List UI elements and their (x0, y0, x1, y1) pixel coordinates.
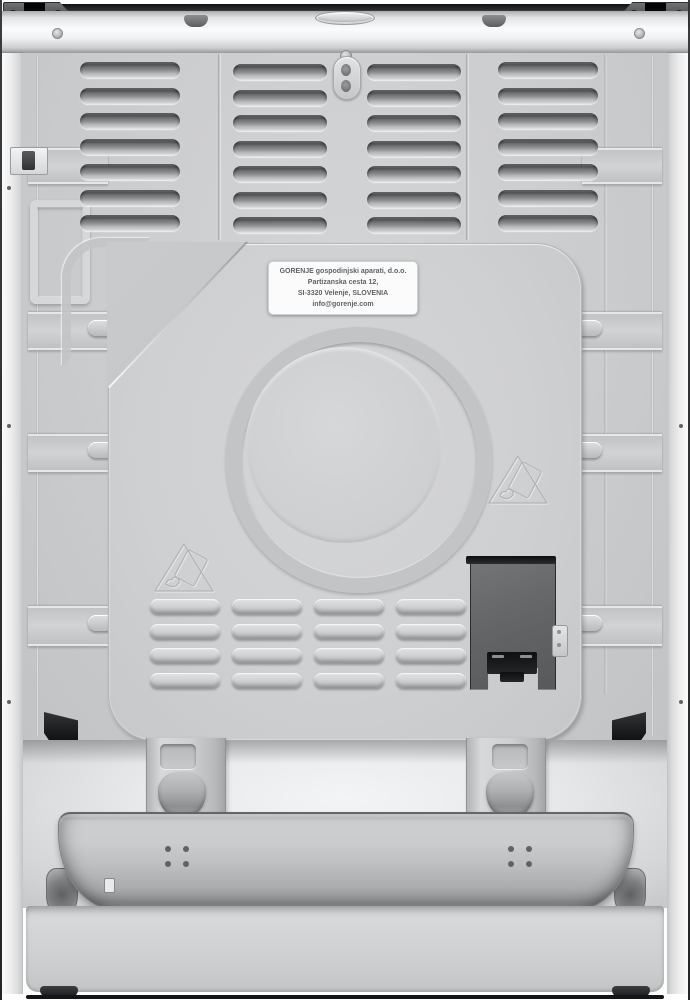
pan-support-tab (482, 15, 506, 27)
vent-slot (80, 164, 180, 180)
clamp-tab (500, 672, 524, 682)
side-screw-icon (7, 186, 11, 190)
vent-slot (498, 215, 598, 231)
vent-slot (233, 141, 327, 157)
baking-pan (58, 812, 634, 911)
vent-slot (367, 192, 461, 208)
panel-seam (218, 54, 221, 240)
center-mount-bracket (333, 56, 361, 100)
rating-label-line: Partizanska cesta 12, (269, 277, 417, 288)
panel-seam (466, 54, 469, 240)
side-screw-icon (679, 424, 683, 428)
vent-slot (498, 139, 598, 155)
clamp-slot (492, 655, 504, 658)
rating-label-line: info@gorenje.com (269, 299, 417, 310)
rail-cutout (492, 744, 528, 769)
vent-slot (233, 166, 327, 182)
vent-slot (233, 217, 327, 233)
vent-slot (367, 90, 461, 106)
rail-cutout (160, 744, 196, 769)
vent-pill (314, 673, 384, 688)
vent-slot (498, 113, 598, 129)
vent-pill (150, 673, 220, 688)
vent-slot (80, 190, 180, 206)
clamp-slot (520, 655, 532, 658)
rating-label-line: GORENJE gospodinjski aparati, d.o.o. (269, 266, 417, 277)
rating-label: GORENJE gospodinjski aparati, d.o.o. Par… (268, 261, 418, 315)
latch-pin (22, 151, 35, 170)
vent-pill (232, 624, 302, 639)
pan-hole (104, 878, 115, 893)
vent-pill (232, 599, 302, 614)
vent-pill (232, 648, 302, 663)
vent-slot (80, 139, 180, 155)
pan-screw-icon (165, 846, 171, 852)
vent-pill (150, 599, 220, 614)
strip-screw-icon (52, 28, 63, 39)
gorenje-logo-badge (315, 11, 375, 25)
fan-cover-disc (246, 347, 442, 543)
vent-pill (396, 624, 466, 639)
pan-screw-icon (183, 861, 189, 867)
vent-slot (80, 113, 180, 129)
vent-slot (233, 115, 327, 131)
bracket-hole-icon (341, 80, 351, 92)
rating-label-line: SI-3320 Velenje, SLOVENIA (269, 288, 417, 299)
vent-slot (367, 115, 461, 131)
pan-screw-icon (508, 846, 514, 852)
vent-pill (396, 599, 466, 614)
side-screw-icon (679, 700, 683, 704)
vent-slot (367, 141, 461, 157)
vent-slot (367, 166, 461, 182)
vent-slot (233, 90, 327, 106)
vent-pill (314, 599, 384, 614)
pan-screw-icon (526, 861, 532, 867)
terminal-box-lid (466, 556, 556, 564)
vent-pill (314, 624, 384, 639)
vent-pill (150, 624, 220, 639)
tab-hole (557, 630, 561, 634)
side-screw-icon (7, 700, 11, 704)
bracket-hole-icon (341, 64, 351, 76)
vent-pill (314, 648, 384, 663)
vent-slot (367, 217, 461, 233)
pan-support-tab (184, 15, 208, 27)
tip-over-warning-icon (483, 452, 553, 510)
vent-pill (396, 673, 466, 688)
left-side-wall (2, 46, 23, 994)
strip-screw-icon (634, 28, 645, 39)
vent-pill (150, 648, 220, 663)
pan-screw-icon (183, 846, 189, 852)
tip-over-warning-icon (149, 540, 219, 598)
base-shadow-line (26, 995, 664, 999)
vent-slot (498, 164, 598, 180)
vent-slot (233, 192, 327, 208)
plinth-panel (26, 906, 664, 992)
vent-slot (498, 88, 598, 104)
vent-slot (498, 62, 598, 78)
vent-slot (367, 64, 461, 80)
vent-slot (498, 190, 598, 206)
vent-slot (233, 64, 327, 80)
side-screw-icon (7, 424, 11, 428)
pan-screw-icon (526, 846, 532, 852)
vent-slot (80, 215, 180, 231)
right-side-wall (667, 46, 688, 994)
pan-screw-icon (508, 861, 514, 867)
tab-hole (557, 643, 561, 647)
vent-slot (80, 62, 180, 78)
cooker-rear-view: GORENJE gospodinjski aparati, d.o.o. Par… (0, 0, 690, 1000)
vent-slot (80, 88, 180, 104)
pan-screw-icon (165, 861, 171, 867)
vent-pill (232, 673, 302, 688)
vent-pill (396, 648, 466, 663)
